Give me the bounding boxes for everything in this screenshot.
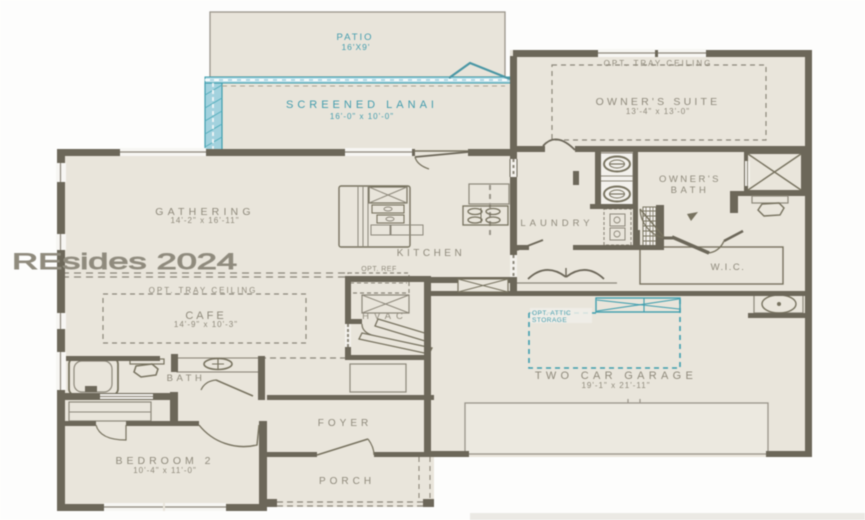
svg-text:BATH: BATH — [167, 373, 206, 384]
svg-text:16'X9': 16'X9' — [341, 42, 370, 52]
svg-text:14'-9" x 10'-3": 14'-9" x 10'-3" — [174, 320, 238, 329]
svg-text:PORCH: PORCH — [319, 476, 375, 487]
svg-text:KITCHEN: KITCHEN — [397, 248, 465, 259]
svg-text:LAUNDRY: LAUNDRY — [520, 218, 593, 229]
svg-text:13'-4" x 13'-0": 13'-4" x 13'-0" — [626, 107, 690, 116]
svg-text:16'-0" x 10'-0": 16'-0" x 10'-0" — [330, 112, 394, 121]
svg-text:W.I.C.: W.I.C. — [711, 262, 746, 273]
svg-text:BATH: BATH — [671, 185, 710, 196]
svg-text:OPT. REF: OPT. REF — [361, 266, 397, 273]
svg-text:19'-1" x 21'-11": 19'-1" x 21'-11" — [581, 381, 650, 390]
svg-text:OPT. TRAY CEILING: OPT. TRAY CEILING — [604, 59, 713, 68]
svg-text:OWNER'S: OWNER'S — [659, 174, 721, 185]
svg-text:HVAC: HVAC — [362, 311, 408, 322]
svg-text:REsides 2024: REsides 2024 — [12, 249, 237, 274]
svg-text:OPT. ATTIC: OPT. ATTIC — [532, 310, 571, 317]
svg-text:SCREENED LANAI: SCREENED LANAI — [286, 99, 438, 111]
svg-text:10'-4" x 11'-0": 10'-4" x 11'-0" — [133, 466, 197, 475]
svg-text:14'-2" x 16'-11": 14'-2" x 16'-11" — [170, 216, 239, 225]
svg-text:FOYER: FOYER — [318, 418, 372, 429]
svg-text:STORAGE: STORAGE — [532, 317, 567, 324]
svg-text:OPT. TRAY CEILING: OPT. TRAY CEILING — [149, 286, 258, 295]
